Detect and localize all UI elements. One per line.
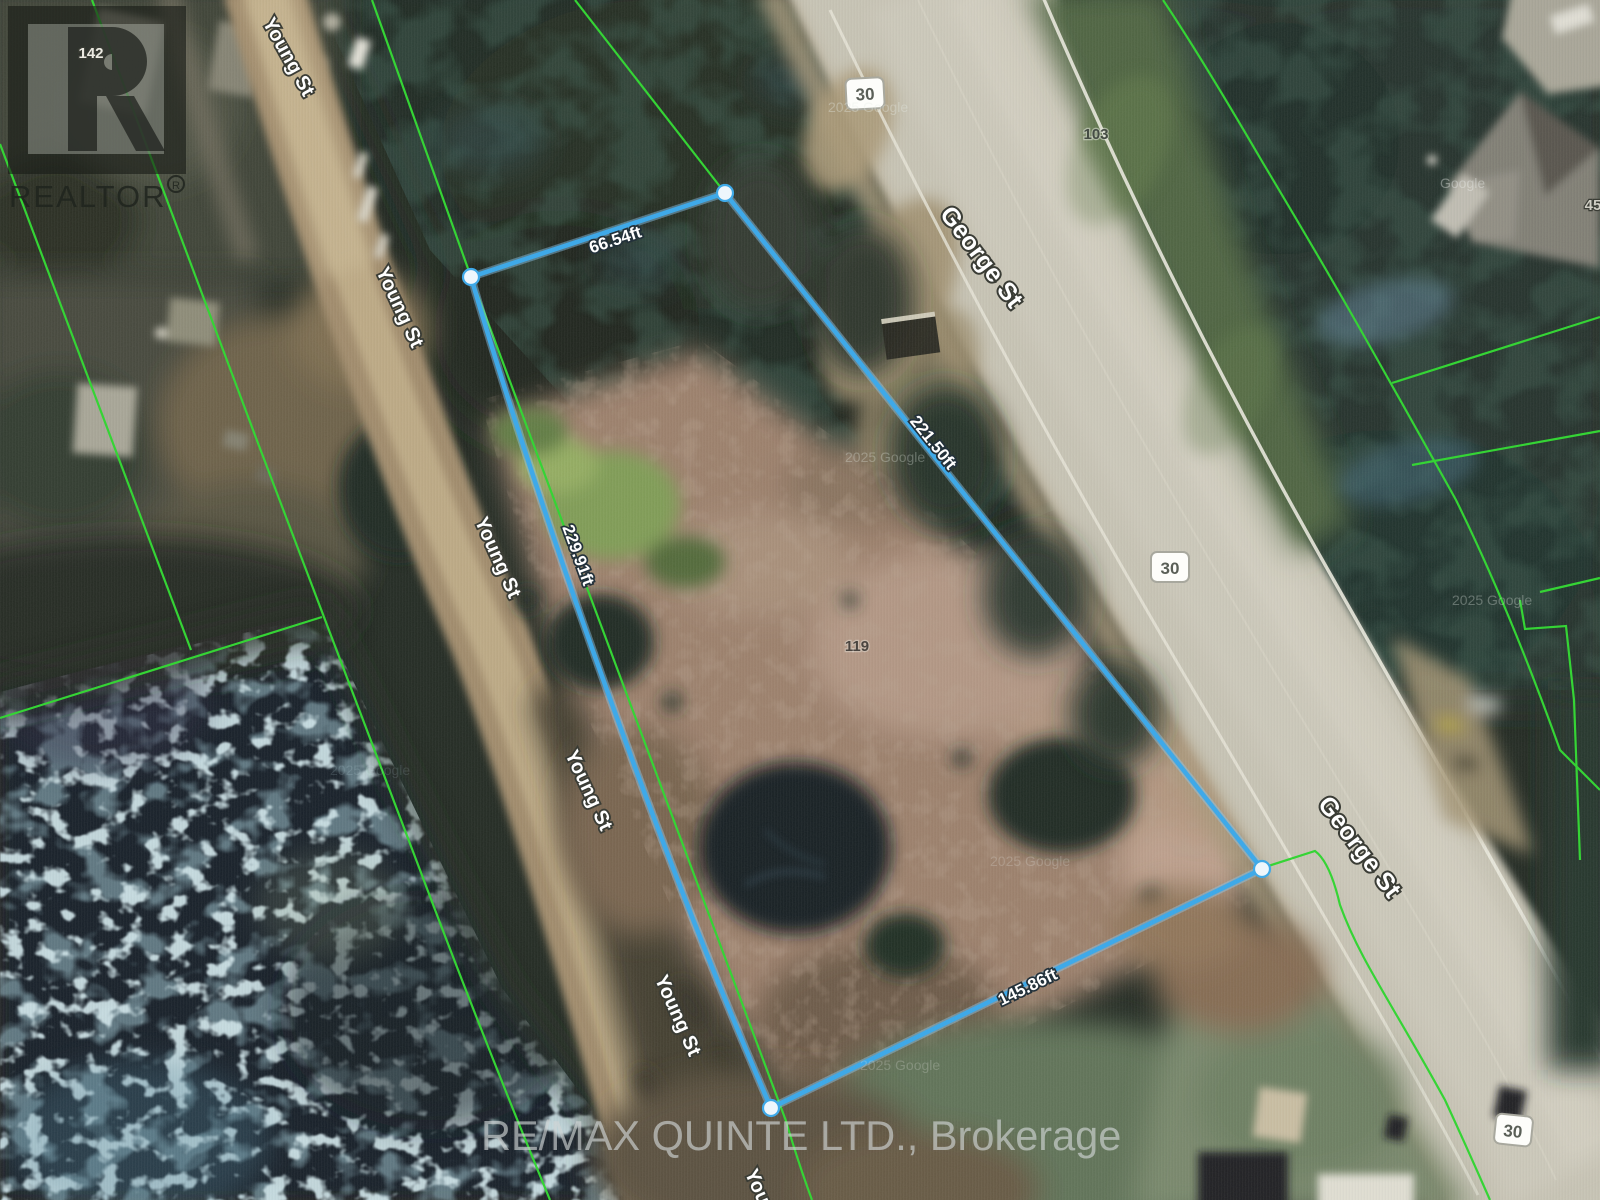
svg-text:2025 Google: 2025 Google [860,1057,940,1073]
svg-text:R: R [172,180,180,192]
svg-text:2025 Google: 2025 Google [845,449,925,465]
svg-text:30: 30 [1502,1121,1523,1142]
svg-text:142: 142 [78,45,103,62]
svg-text:2025 Google: 2025 Google [828,99,908,115]
svg-text:REALTOR: REALTOR [9,179,167,214]
svg-text:103: 103 [1083,126,1108,143]
svg-text:2025 Google: 2025 Google [990,853,1070,869]
svg-text:2025 Google: 2025 Google [330,762,410,778]
svg-text:RE/MAX QUINTE LTD., Brokerage: RE/MAX QUINTE LTD., Brokerage [481,1112,1121,1159]
svg-text:Google: Google [1440,175,1485,191]
svg-text:119: 119 [845,638,869,655]
svg-text:45: 45 [1585,197,1600,214]
svg-text:2025 Google: 2025 Google [1452,592,1532,608]
svg-text:30: 30 [1161,559,1180,578]
